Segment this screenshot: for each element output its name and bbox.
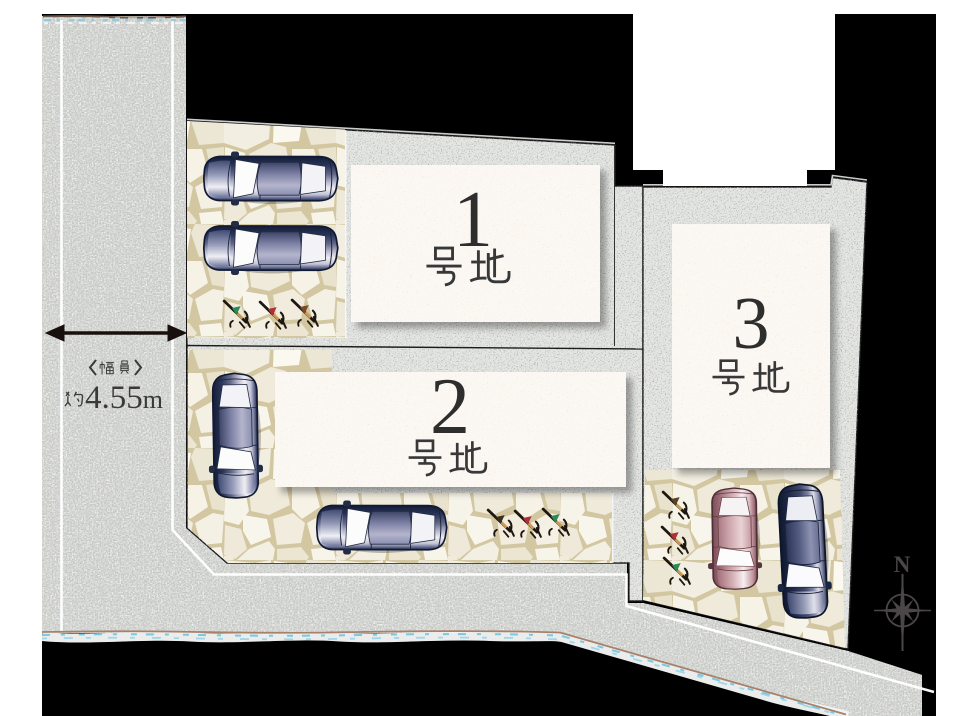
svg-text:4.55m: 4.55m <box>85 380 163 416</box>
svg-text:2: 2 <box>430 363 470 451</box>
svg-text:3: 3 <box>733 283 770 365</box>
svg-text:1: 1 <box>453 176 493 264</box>
svg-text:N: N <box>894 552 911 577</box>
